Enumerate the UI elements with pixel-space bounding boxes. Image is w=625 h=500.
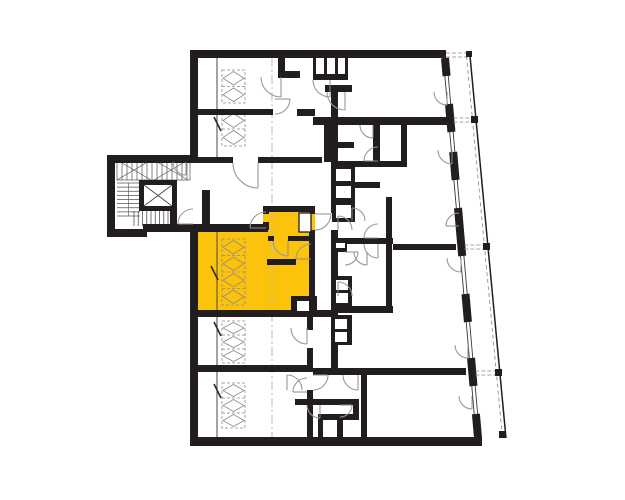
door-swing-arc <box>275 99 290 114</box>
closet-diamond <box>223 131 244 145</box>
door-swing-arc <box>173 162 186 175</box>
unit-divider-wall <box>313 368 466 375</box>
room-wall <box>355 182 380 188</box>
inner-wall <box>311 259 315 265</box>
door-swing-arc <box>364 244 378 258</box>
balcony-door-arc <box>447 258 461 272</box>
room-wall <box>373 125 380 161</box>
door-swing-arc <box>434 92 447 105</box>
door-swing-arc <box>447 258 461 272</box>
entry-wall <box>318 414 359 420</box>
vestibule-wall <box>263 222 269 230</box>
balcony-post <box>495 369 502 376</box>
niche-door-arc <box>275 99 290 114</box>
stair-room-door-arc <box>173 162 186 175</box>
entry-wall <box>361 375 367 437</box>
closet-diamond <box>223 400 244 412</box>
entry-wall <box>318 420 323 437</box>
balcony-door-arc <box>459 396 472 409</box>
closet-diamond <box>223 114 244 128</box>
balcony-post <box>466 51 472 57</box>
closet-diamond <box>223 415 244 427</box>
door-swing-arc <box>233 163 258 188</box>
bath-wall <box>288 236 315 241</box>
shaft-cell <box>335 332 347 342</box>
closet-diamond <box>223 72 244 86</box>
notch-cell <box>297 301 309 311</box>
stairwing-bottom-wall <box>107 229 147 237</box>
door-swing-arc <box>178 209 193 224</box>
topleft-unit-door-arc <box>261 77 281 97</box>
shaft-cell <box>336 186 351 198</box>
room-wall <box>401 117 407 167</box>
closet-diamond <box>223 337 244 348</box>
facade-pier <box>458 208 462 256</box>
closet-diamond <box>223 351 244 362</box>
unit-entry-door-arc <box>315 214 331 230</box>
door-swing-arc <box>291 328 307 344</box>
bath-shaft <box>299 213 311 232</box>
corridor-door-arc <box>233 163 258 188</box>
door-swing-arc <box>354 252 367 265</box>
closet-diamond <box>223 385 244 397</box>
door-swing-arc <box>315 214 331 230</box>
balcony-post <box>483 243 490 250</box>
door-swing-arc <box>364 224 378 238</box>
stairwing-left-wall <box>107 155 115 237</box>
topunit-stub-h <box>281 71 300 78</box>
room-wall <box>328 142 354 148</box>
center-left-wall <box>331 230 338 280</box>
bath-wall <box>268 236 274 241</box>
outer-left-upper-wall <box>190 50 198 162</box>
door-swing-arc <box>360 125 373 138</box>
balcony-post <box>471 116 478 123</box>
corridor-top-wall-b <box>258 157 322 163</box>
entry-wall <box>337 420 343 437</box>
entry-door-arc <box>313 375 328 390</box>
elevator <box>139 180 177 211</box>
floor-plan-viewer <box>0 0 625 500</box>
door-swing-arc <box>455 345 468 358</box>
room-door-arc <box>364 224 378 238</box>
shaft-cell <box>336 169 351 181</box>
balcony-door-arc <box>455 345 468 358</box>
outer-bottom-wall <box>190 437 482 446</box>
closet-hatch <box>222 321 245 363</box>
door-swing-arc <box>343 375 358 390</box>
rooms-right-wall <box>307 317 313 330</box>
room-wall <box>386 197 392 307</box>
unit-divider-wall <box>313 117 452 125</box>
outer-top-wall <box>190 50 446 58</box>
shaft-cell <box>335 319 347 329</box>
room-door-arc <box>287 375 302 390</box>
cells-divider <box>324 58 327 74</box>
facade-pier <box>453 152 455 180</box>
room-door-arc <box>293 378 307 392</box>
closet-hatch <box>222 112 245 146</box>
closet-outline <box>222 383 245 428</box>
door-swing-arc <box>287 375 302 390</box>
inner-wall <box>267 259 296 265</box>
cells-divider <box>335 58 338 74</box>
unit-divider-wall <box>198 365 313 372</box>
balcony-post <box>499 431 506 438</box>
door-swing-arc <box>459 396 472 409</box>
room-door-arc <box>360 125 373 138</box>
outer-left-main-wall <box>190 224 198 445</box>
room-door-arc <box>354 252 367 265</box>
cells-divider <box>313 58 316 74</box>
facade-pier <box>445 58 447 76</box>
floor-plan-drawing <box>0 0 625 500</box>
door-swing-arc <box>261 77 281 97</box>
room-door-arc <box>364 244 378 258</box>
entry-door-arc <box>343 375 358 390</box>
vestibule-top-wall <box>263 206 315 212</box>
closet-diamond <box>223 88 244 102</box>
cells-divider <box>345 58 348 74</box>
unit-divider-wall <box>393 244 456 250</box>
topunit-partition-wall <box>198 109 273 115</box>
balcony-door-arc <box>434 92 447 105</box>
unit-room-top-wall <box>198 224 268 230</box>
facade-pier <box>476 414 478 438</box>
closet-diamond <box>223 323 244 334</box>
center-top-stub <box>325 85 352 92</box>
room-door-arc <box>291 328 307 344</box>
door-swing-arc <box>293 378 307 392</box>
duct-slot <box>336 243 345 248</box>
entry-stub <box>297 109 315 116</box>
closet-outline <box>222 321 245 363</box>
entry-wall <box>295 399 355 405</box>
entry-wall <box>353 399 359 420</box>
door-swing-arc <box>313 375 328 390</box>
cells-bottom-wall <box>313 74 348 80</box>
rooms-right-wall <box>307 348 313 372</box>
facade-pier <box>471 358 473 386</box>
facade-pier <box>465 294 467 322</box>
closet-hatch <box>222 383 245 428</box>
stair-door-arc <box>178 209 193 224</box>
closet-hatch <box>222 70 245 103</box>
